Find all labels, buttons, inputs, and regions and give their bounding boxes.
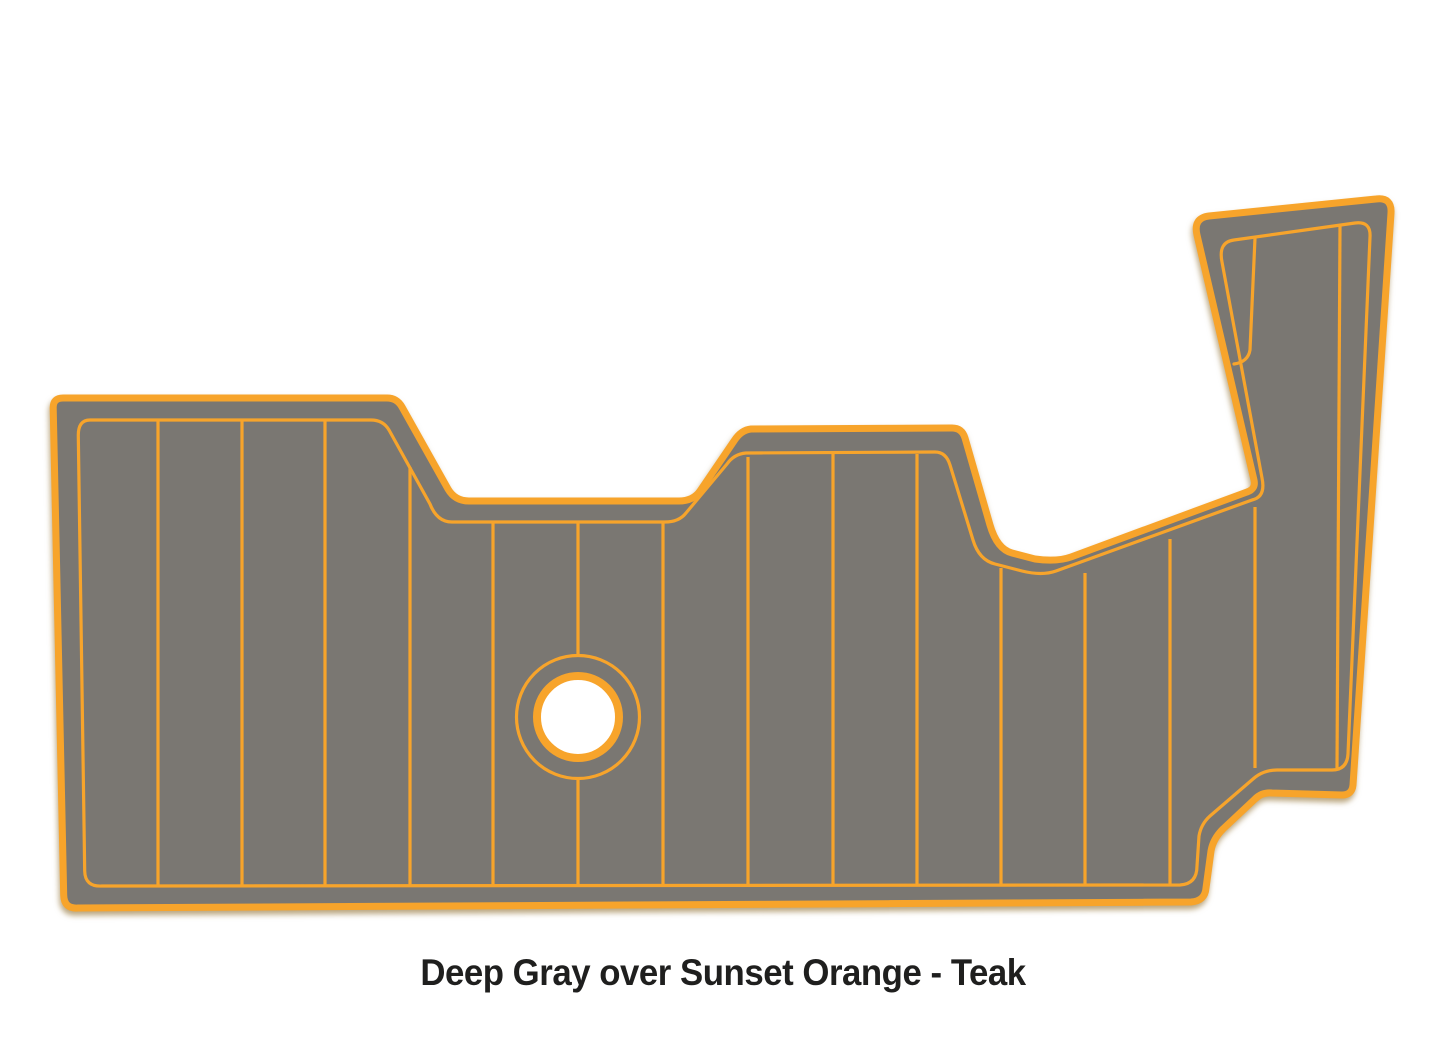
pad-outer-border — [53, 199, 1391, 908]
color-option-caption: Deep Gray over Sunset Orange - Teak — [0, 952, 1445, 994]
product-preview-canvas: Deep Gray over Sunset Orange - Teak — [0, 0, 1445, 1053]
boat-decking-pad-diagram — [0, 0, 1445, 1053]
round-hole-cutout — [537, 676, 619, 758]
decking-pad-shape — [53, 199, 1391, 908]
caption-text: Deep Gray over Sunset Orange - Teak — [420, 952, 1025, 994]
